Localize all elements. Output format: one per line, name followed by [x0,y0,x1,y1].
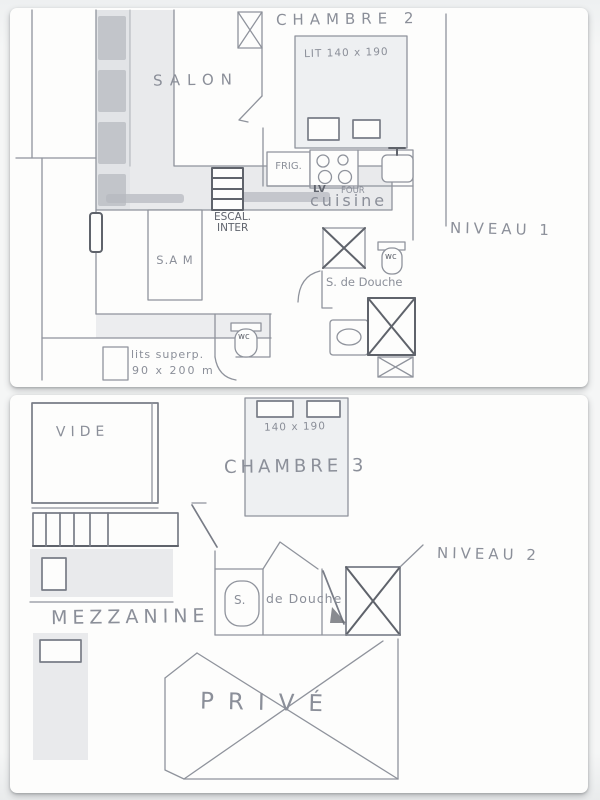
mezzanine-bed [30,549,173,602]
floorplan-level1-sheet: SALON CHAMBRE 2 LIT 140 x 190 FRIG. LV F… [10,8,588,387]
chambre3-door [192,503,217,547]
mezzanine-label: MEZZANINE [51,606,210,629]
douche-label: S. de Douche [326,276,403,289]
salon-label: SALON [153,71,239,89]
fridge-label: FRIG. [267,161,310,172]
pillow-icon [307,401,340,417]
wc-small-label: wc [238,333,250,342]
entry-door [238,12,262,122]
cuisine-label: cuisine [310,192,387,210]
level1-title: NIVEAU 1 [450,220,553,239]
pillow-icon [353,120,380,138]
level1-drawing [10,8,588,387]
stairs-label-line2: INTER [217,223,248,235]
vide-room [32,403,158,508]
chambre3-bed-size: 140 x 190 [264,421,326,434]
pillow-icon [40,640,81,662]
stairs-internal [212,168,243,210]
wc-bath-label: wc [385,253,397,262]
left-wall-door [90,213,102,252]
level2-title: NIVEAU 2 [437,545,540,564]
cooktop [310,150,358,188]
outer-walls [16,10,96,380]
bunk-label-line1: lits superp. [131,349,204,361]
chambre2-title: CHAMBRE 2 [276,10,420,29]
douche2-label-rest: de Douche [266,592,342,606]
washbasin-icon [330,320,368,355]
douche2-label-s: S. [234,594,245,607]
single-bed [33,633,88,760]
vide-label: VIDE [56,425,110,441]
bunk-bed [103,347,128,380]
chambre2-bed-size: LIT 140 x 190 [304,47,389,61]
pillow-icon [257,401,293,417]
prive-label: PRIVÉ [200,689,337,717]
floorplan-level2-sheet: VIDE 140 x 190 CHAMBRE 3 MEZZANINE S. de… [10,395,588,793]
pillow-icon [42,558,66,590]
chambre3-title: CHAMBRE 3 [224,456,368,478]
pillow-icon [308,118,339,140]
shower-room-level2 [215,542,423,635]
sink-icon [382,148,413,182]
stairs-level2 [33,513,178,546]
sam-label: S.A M [148,254,202,267]
bunk-label-line2: 90 x 200 m [132,365,215,377]
